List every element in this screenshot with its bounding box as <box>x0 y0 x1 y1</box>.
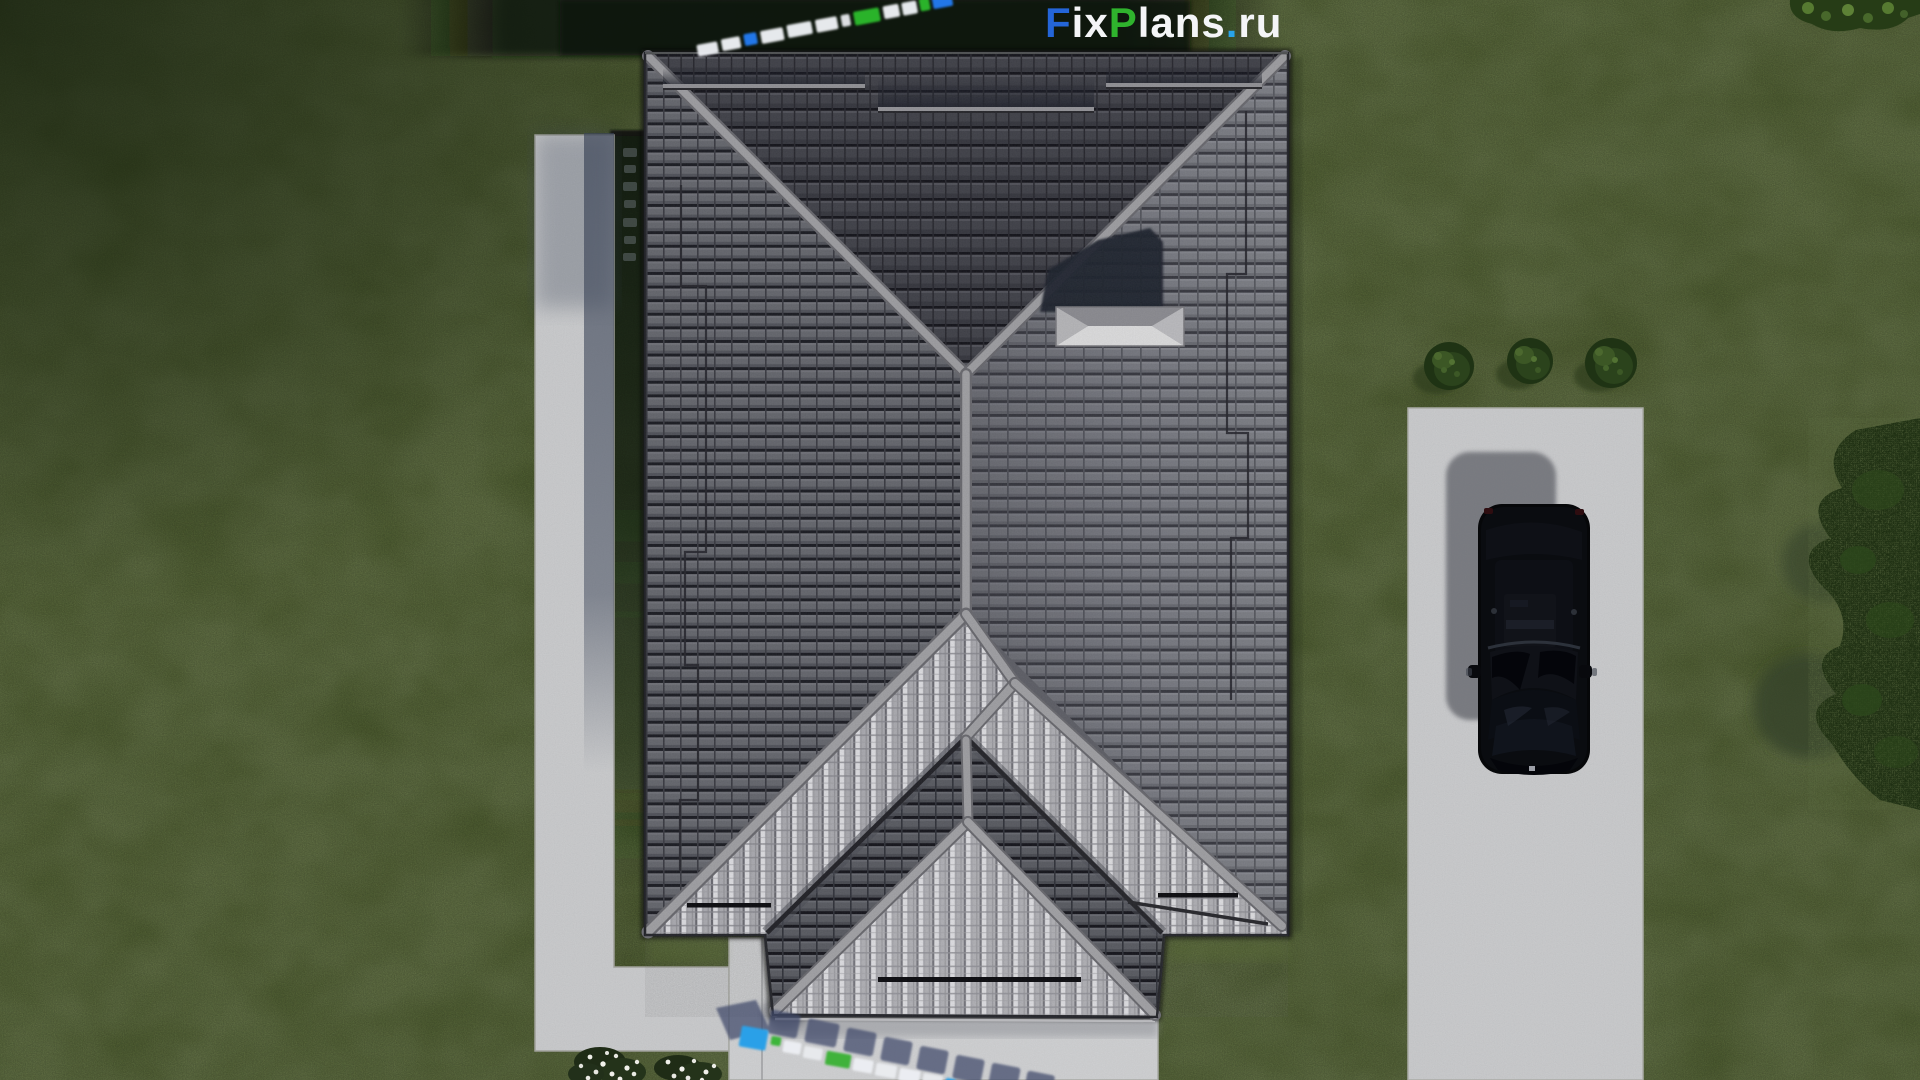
svg-text:FixPlans.ru: FixPlans.ru <box>1045 0 1282 46</box>
